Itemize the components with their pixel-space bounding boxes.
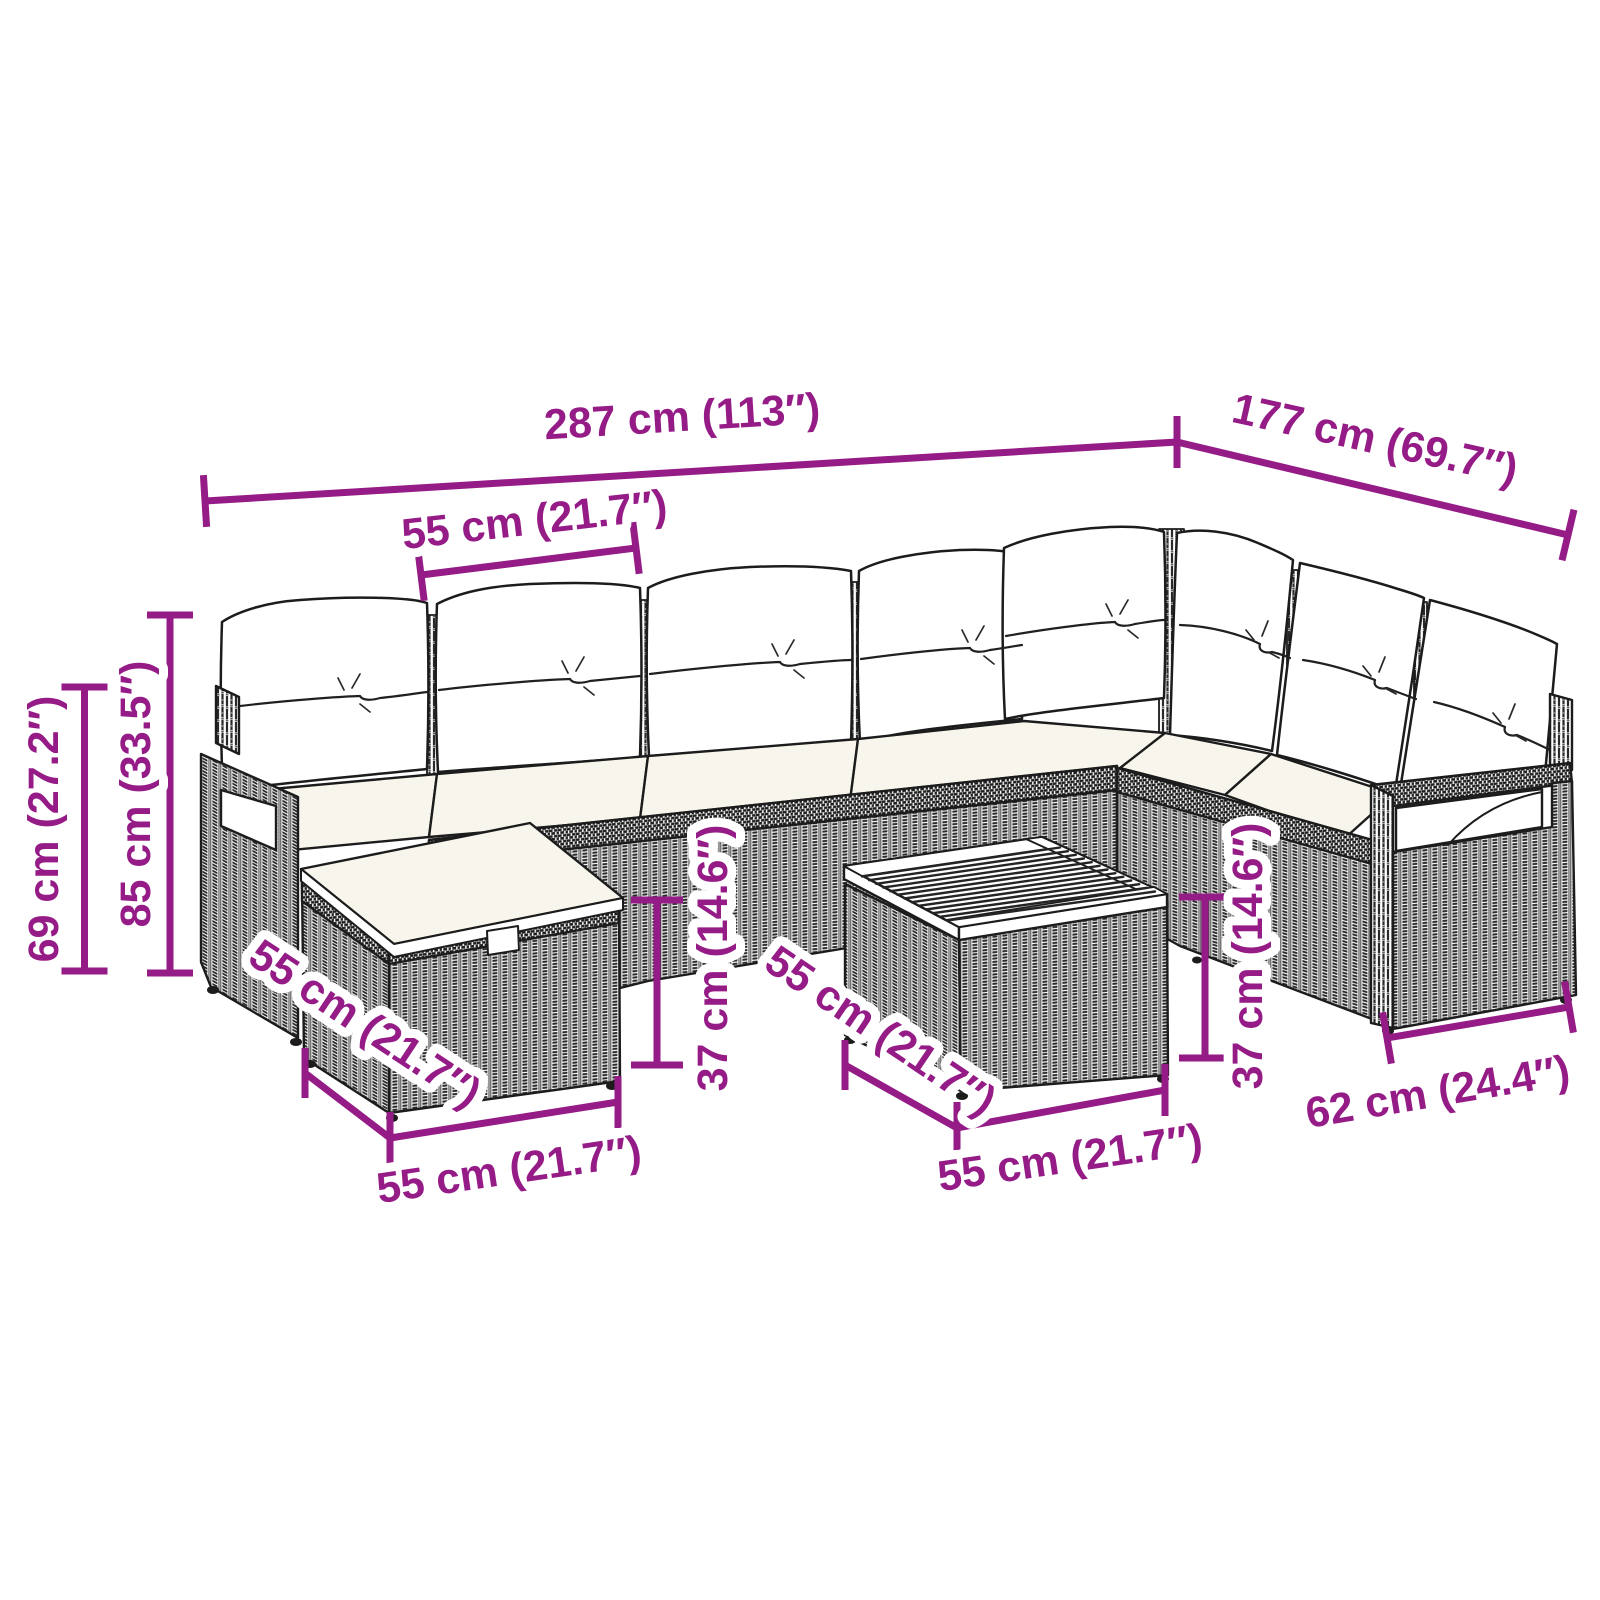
- svg-text:69 cm (27.2″): 69 cm (27.2″): [20, 696, 68, 963]
- svg-text:85 cm (33.5″): 85 cm (33.5″): [112, 661, 160, 928]
- svg-text:37 cm (14.6″): 37 cm (14.6″): [1224, 823, 1272, 1090]
- svg-text:37 cm (14.6″): 37 cm (14.6″): [689, 825, 737, 1092]
